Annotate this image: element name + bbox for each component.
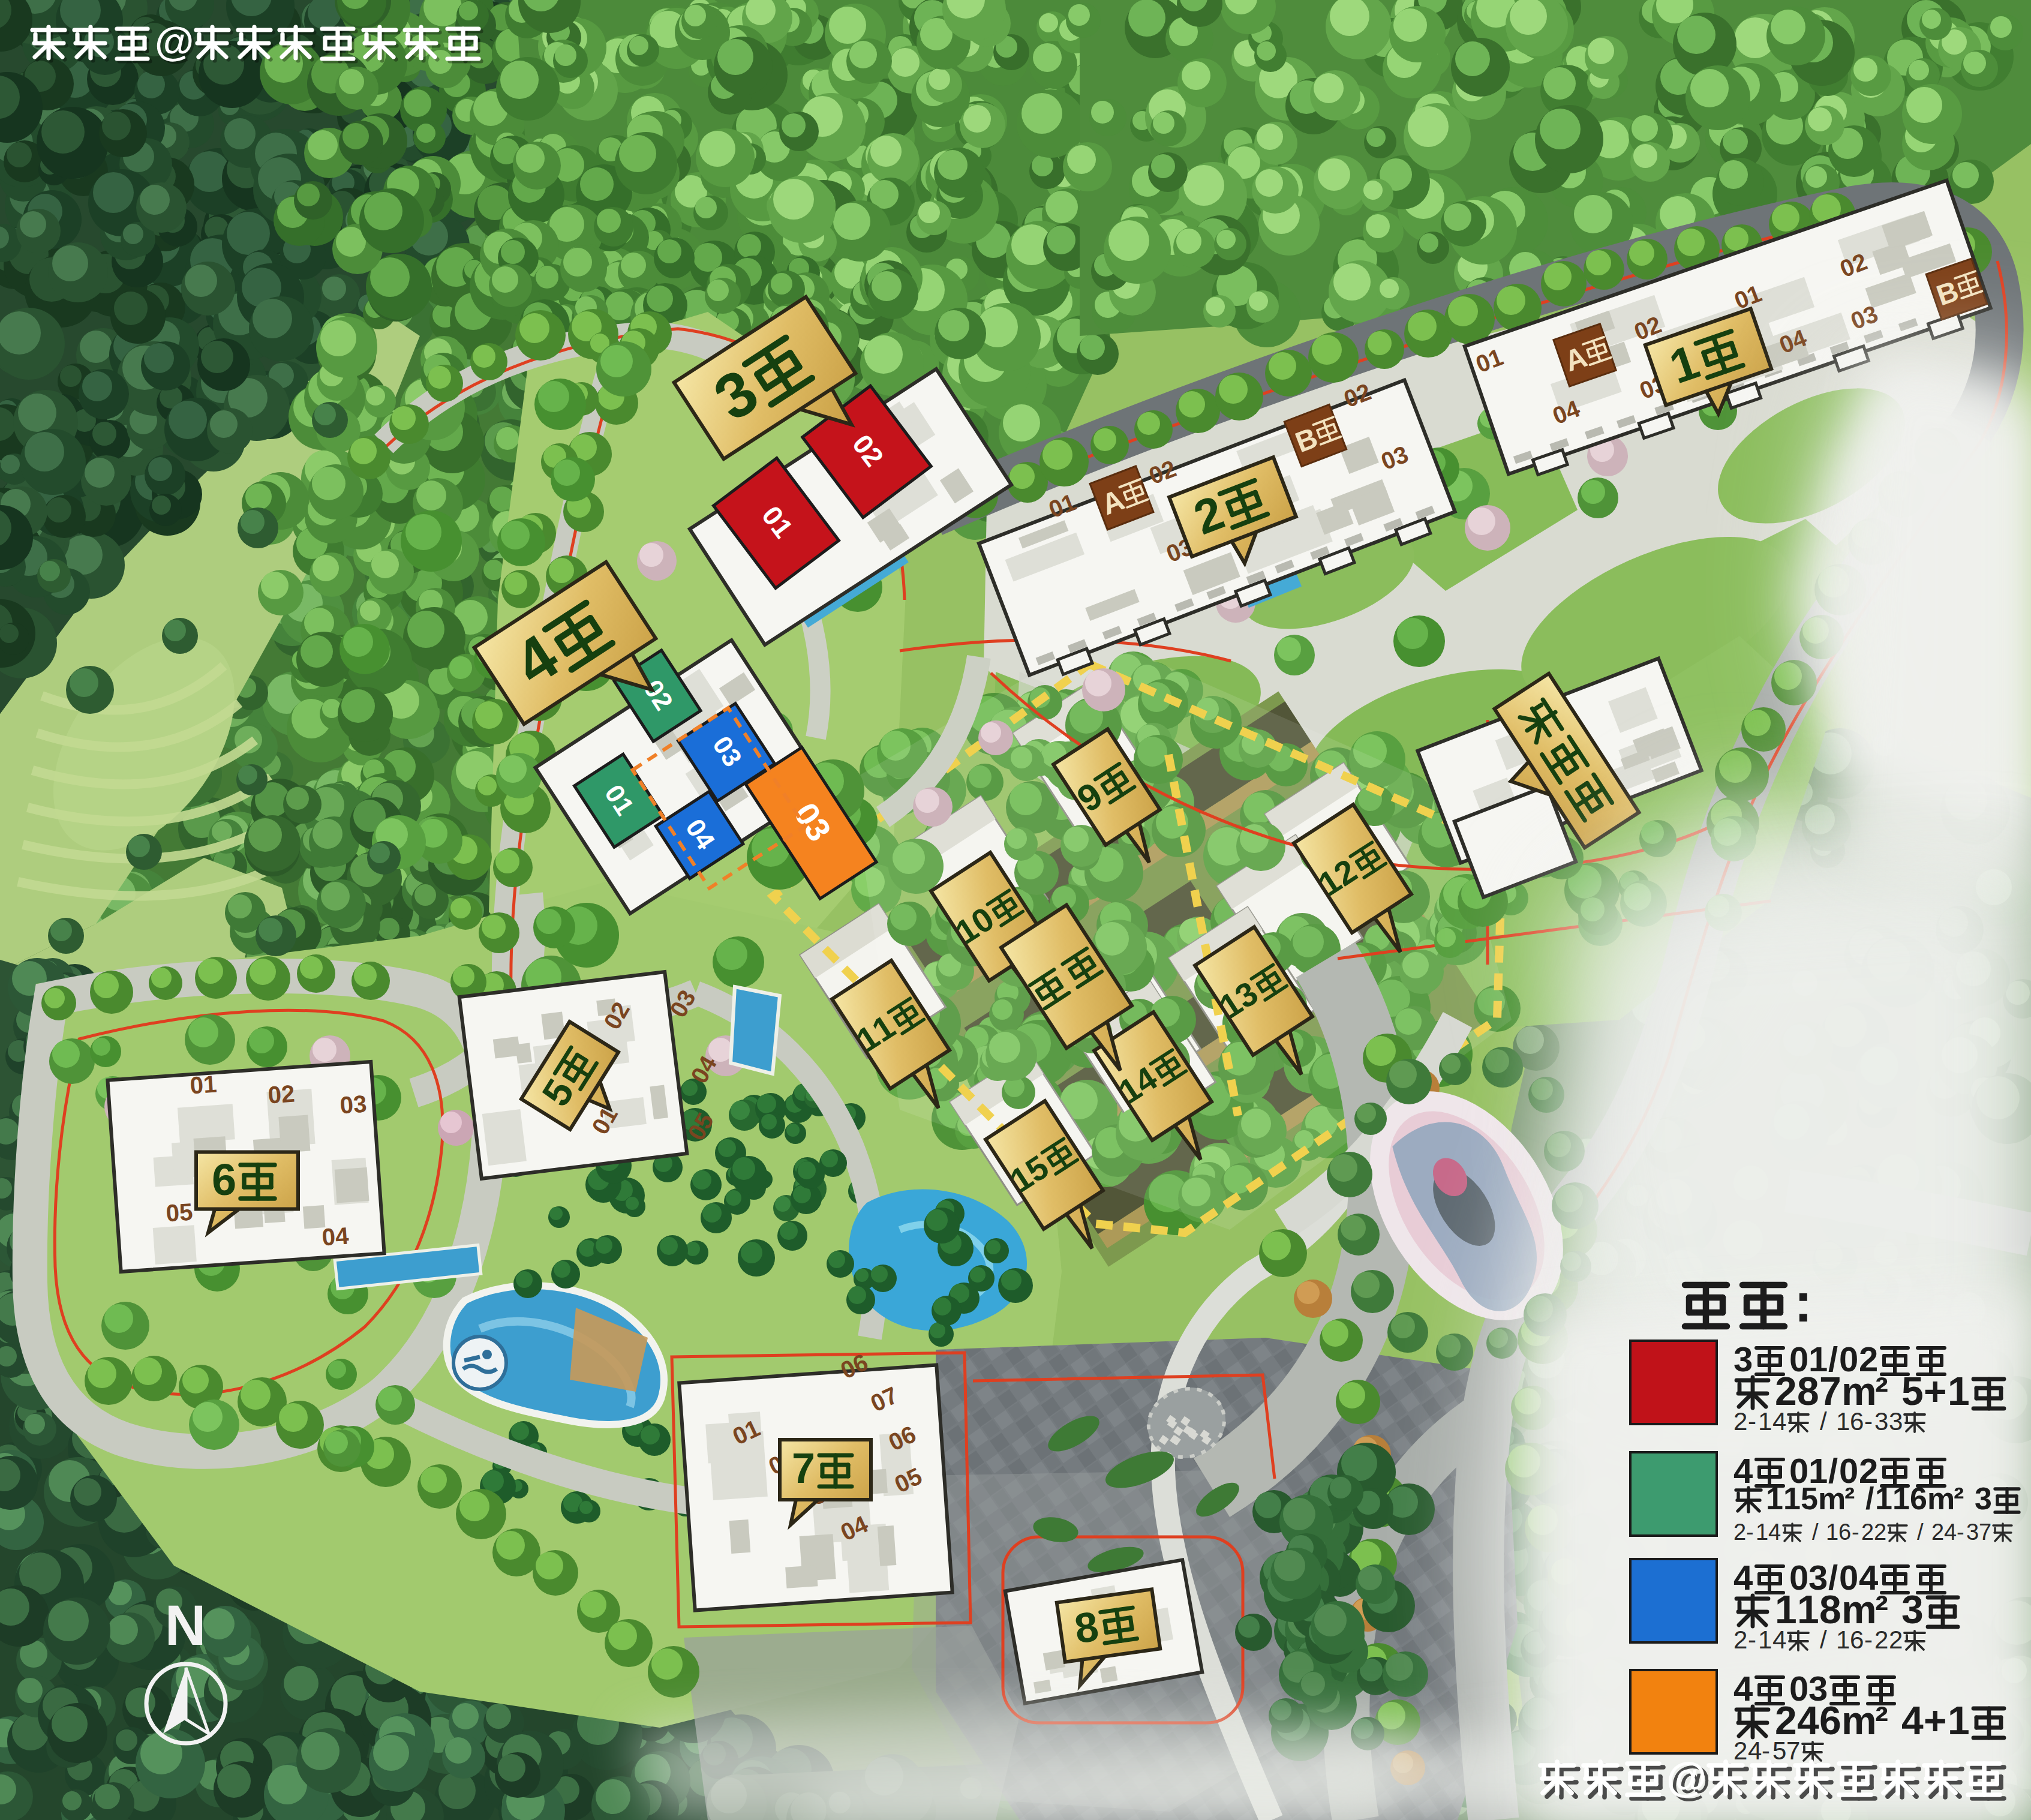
svg-text:4: 4 bbox=[1901, 1698, 1924, 1743]
svg-text:1: 1 bbox=[1875, 1481, 1892, 1516]
svg-text:05: 05 bbox=[165, 1199, 193, 1227]
svg-text:/: / bbox=[1865, 1481, 1874, 1516]
svg-text:3: 3 bbox=[1889, 1407, 1903, 1435]
svg-text:1: 1 bbox=[1758, 1407, 1772, 1435]
svg-text:4: 4 bbox=[1944, 1519, 1957, 1545]
svg-text:/: / bbox=[1820, 1626, 1827, 1654]
svg-text:/: / bbox=[1812, 1519, 1819, 1545]
svg-text:3: 3 bbox=[1975, 1481, 1992, 1516]
svg-text:5: 5 bbox=[1801, 1481, 1818, 1516]
svg-text:m: m bbox=[1841, 1698, 1877, 1743]
svg-text:3: 3 bbox=[1966, 1519, 1979, 1545]
svg-text:02: 02 bbox=[267, 1080, 295, 1109]
svg-text:1: 1 bbox=[1836, 1407, 1850, 1435]
svg-text:m: m bbox=[1841, 1587, 1877, 1632]
svg-text:7: 7 bbox=[1979, 1519, 1991, 1545]
svg-text:6: 6 bbox=[1819, 1698, 1841, 1743]
svg-text:6: 6 bbox=[1838, 1519, 1851, 1545]
svg-text:-: - bbox=[1864, 1407, 1873, 1435]
svg-text:+: + bbox=[1924, 1698, 1947, 1743]
svg-text:4: 4 bbox=[1772, 1626, 1786, 1654]
svg-text:4: 4 bbox=[1797, 1698, 1819, 1743]
svg-text:1: 1 bbox=[1948, 1698, 1970, 1743]
svg-text::: : bbox=[1794, 1272, 1813, 1333]
svg-text:@: @ bbox=[155, 19, 194, 64]
svg-text:4: 4 bbox=[1772, 1407, 1786, 1435]
svg-text:-: - bbox=[1746, 1519, 1754, 1545]
svg-text:/: / bbox=[1820, 1407, 1827, 1435]
svg-text:6: 6 bbox=[1850, 1626, 1864, 1654]
svg-text:m: m bbox=[1927, 1481, 1955, 1516]
svg-text:1: 1 bbox=[1756, 1519, 1768, 1545]
svg-text:4: 4 bbox=[1748, 1737, 1762, 1765]
svg-text:1: 1 bbox=[1775, 1587, 1797, 1632]
svg-text:1: 1 bbox=[1766, 1481, 1783, 1516]
svg-text:3: 3 bbox=[1874, 1407, 1888, 1435]
svg-text:1: 1 bbox=[1797, 1587, 1819, 1632]
svg-text:4: 4 bbox=[1733, 1669, 1753, 1708]
svg-text:1: 1 bbox=[1826, 1519, 1838, 1545]
svg-text:-: - bbox=[1864, 1626, 1873, 1654]
svg-text:-: - bbox=[1748, 1407, 1756, 1435]
svg-text:1: 1 bbox=[1836, 1626, 1850, 1654]
svg-text:+: + bbox=[1924, 1369, 1947, 1413]
svg-text:7: 7 bbox=[1819, 1369, 1841, 1413]
svg-text:m: m bbox=[1841, 1369, 1877, 1413]
svg-text:2: 2 bbox=[1889, 1626, 1903, 1654]
svg-text:2: 2 bbox=[1775, 1698, 1797, 1743]
svg-text:2: 2 bbox=[1874, 1519, 1886, 1545]
svg-text:²: ² bbox=[1875, 1369, 1888, 1413]
svg-text:1: 1 bbox=[1758, 1626, 1772, 1654]
svg-text:1: 1 bbox=[1892, 1481, 1910, 1516]
svg-text:@: @ bbox=[1666, 1754, 1706, 1800]
svg-text:2: 2 bbox=[1733, 1407, 1747, 1435]
svg-text:4: 4 bbox=[1768, 1519, 1781, 1545]
svg-text:04: 04 bbox=[321, 1222, 350, 1250]
svg-text:03: 03 bbox=[339, 1091, 367, 1119]
svg-text:7: 7 bbox=[792, 1445, 815, 1492]
svg-text:5: 5 bbox=[1901, 1369, 1924, 1413]
svg-text:2: 2 bbox=[1733, 1519, 1746, 1545]
svg-text:4: 4 bbox=[1733, 1558, 1753, 1597]
svg-text:²: ² bbox=[1954, 1481, 1964, 1516]
svg-text:8: 8 bbox=[1797, 1369, 1819, 1413]
svg-text:N: N bbox=[165, 1593, 206, 1657]
svg-text:2: 2 bbox=[1861, 1519, 1874, 1545]
svg-text:²: ² bbox=[1875, 1587, 1888, 1632]
svg-text:²: ² bbox=[1875, 1698, 1888, 1743]
svg-text:6: 6 bbox=[212, 1155, 236, 1205]
svg-text:3: 3 bbox=[1733, 1340, 1753, 1378]
svg-text:-: - bbox=[1852, 1519, 1859, 1545]
svg-text:2: 2 bbox=[1775, 1369, 1797, 1413]
svg-text:2: 2 bbox=[1733, 1626, 1747, 1654]
svg-text:-: - bbox=[1748, 1626, 1756, 1654]
svg-text:1: 1 bbox=[1783, 1481, 1801, 1516]
svg-text:2: 2 bbox=[1874, 1626, 1888, 1654]
svg-text:/: / bbox=[1917, 1519, 1924, 1545]
svg-text:m: m bbox=[1818, 1481, 1846, 1516]
svg-text:6: 6 bbox=[1850, 1407, 1864, 1435]
svg-text:1: 1 bbox=[1948, 1369, 1970, 1413]
svg-text:4: 4 bbox=[1733, 1451, 1753, 1490]
svg-text:2: 2 bbox=[1931, 1519, 1944, 1545]
svg-text:-: - bbox=[1957, 1519, 1964, 1545]
svg-text:2: 2 bbox=[1733, 1737, 1747, 1765]
svg-text:6: 6 bbox=[1910, 1481, 1927, 1516]
svg-text:²: ² bbox=[1844, 1481, 1855, 1516]
svg-text:01: 01 bbox=[189, 1071, 217, 1099]
svg-text:8: 8 bbox=[1819, 1587, 1841, 1632]
svg-text:5: 5 bbox=[1772, 1737, 1786, 1765]
svg-text:7: 7 bbox=[1786, 1737, 1800, 1765]
svg-text:3: 3 bbox=[1901, 1587, 1924, 1632]
